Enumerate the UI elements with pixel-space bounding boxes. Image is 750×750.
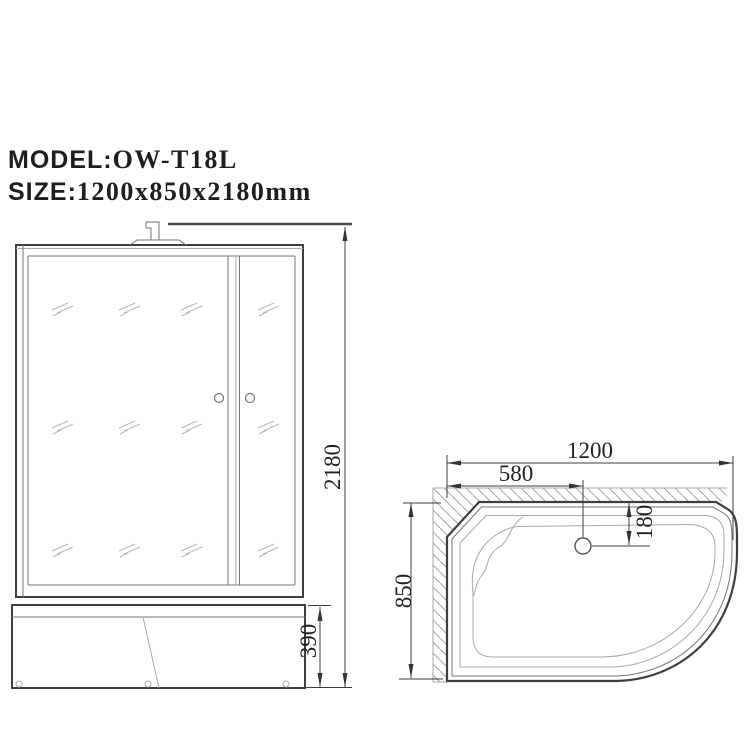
dimension-390: 390 — [296, 607, 322, 687]
roof-pipe-fitting — [130, 222, 186, 245]
drawing-canvas: MODEL:OW-T18L SIZE:1200x850x2180mm — [0, 0, 750, 750]
dimension-180: 180 — [627, 503, 658, 545]
door-handle-right — [246, 394, 255, 403]
cabin-frame — [16, 245, 303, 597]
front-elevation-view — [12, 222, 305, 688]
door-handle-left — [215, 394, 224, 403]
plan-view: 1200 580 180 — [391, 438, 737, 682]
dimension-850: 850 — [391, 503, 416, 678]
dimension-2180: 2180 — [320, 227, 347, 687]
technical-drawing: 2180 390 — [0, 0, 750, 750]
dimension-1200-label: 1200 — [567, 438, 613, 463]
dimension-850-label: 850 — [391, 574, 416, 609]
front-view-dimensions: 2180 390 — [168, 224, 352, 688]
drain-hole — [575, 538, 591, 554]
cabin-frame-profiles — [16, 245, 303, 597]
dimension-390-label: 390 — [296, 624, 321, 659]
tray-outline — [447, 502, 737, 681]
dimension-180-label: 180 — [632, 505, 657, 540]
dimension-1200: 1200 — [447, 438, 733, 466]
dimension-2180-label: 2180 — [320, 444, 345, 490]
glass-reflection-marks — [52, 303, 279, 557]
dimension-580: 580 — [447, 461, 583, 489]
door-divider — [228, 256, 240, 585]
dimension-580-label: 580 — [499, 461, 534, 486]
base-panel-details — [12, 617, 305, 688]
